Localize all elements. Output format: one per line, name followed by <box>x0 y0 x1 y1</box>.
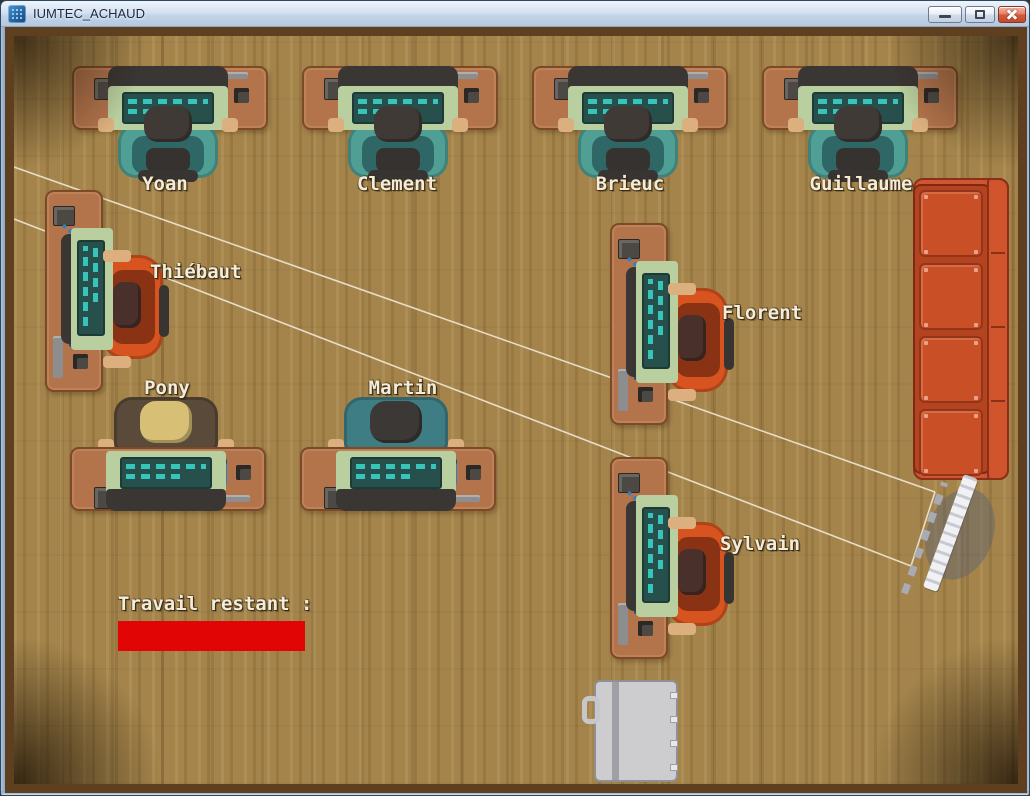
box-icon <box>638 387 653 402</box>
box-icon <box>466 465 481 480</box>
worker-arm <box>668 283 696 295</box>
couch-cushion <box>919 409 983 476</box>
screen-code-lines <box>358 99 438 104</box>
screen-code-lines <box>126 464 206 469</box>
screen-code-lines <box>648 513 653 593</box>
chair-base <box>724 318 734 370</box>
worker-head <box>374 106 422 142</box>
tray-icon <box>618 603 628 645</box>
worker-head <box>834 106 882 142</box>
worker-torso <box>836 148 880 172</box>
workstation-guillaume[interactable] <box>762 66 958 184</box>
maximize-icon <box>975 10 985 19</box>
worker-name-florent: Florent <box>722 302 802 324</box>
game-viewport[interactable]: Travail restant : YoanClementBrieucGuill… <box>5 27 1027 793</box>
screen-code-lines <box>658 279 663 335</box>
maximize-button[interactable] <box>965 6 995 23</box>
workstation-clement[interactable] <box>302 66 498 184</box>
workstation-martin[interactable] <box>300 395 496 513</box>
work-remaining-fill <box>118 621 305 651</box>
worker-head <box>113 282 141 328</box>
workstation-brieuc[interactable] <box>532 66 728 184</box>
monitor-screen <box>350 457 442 489</box>
box-icon <box>694 88 709 103</box>
worker-head <box>678 549 706 595</box>
chair-base <box>724 552 734 604</box>
couch-cushion <box>919 336 983 403</box>
worker-arm <box>668 517 696 529</box>
window-frame: IUMTEC_ACHAUD <box>0 0 1030 796</box>
couch-cushion <box>919 263 983 330</box>
chair-base <box>159 285 169 337</box>
worker-arm <box>103 250 131 262</box>
worker-arm <box>558 118 574 132</box>
couch <box>913 178 1009 480</box>
couch-backrest <box>987 178 1009 480</box>
office-room: Travail restant : YoanClementBrieucGuill… <box>5 27 1027 793</box>
app-window: IUMTEC_ACHAUD <box>0 0 1030 796</box>
screen-code-lines <box>818 99 898 104</box>
worker-name-thiebaut: Thiébaut <box>150 261 242 283</box>
worker-name-martin: Martin <box>369 377 438 399</box>
couch-cushion <box>919 190 983 257</box>
screen-code-lines <box>588 99 668 104</box>
worker-arm <box>912 118 928 132</box>
worker-torso <box>146 148 190 172</box>
screen-code-lines <box>356 474 414 479</box>
worker-name-pony: Pony <box>144 377 190 399</box>
worker-head <box>678 315 706 361</box>
worker-arm <box>788 118 804 132</box>
worker-head <box>140 401 192 443</box>
worker-head <box>144 106 192 142</box>
workstation-pony[interactable] <box>70 395 266 513</box>
door <box>594 680 678 782</box>
projector-screen <box>893 471 1005 603</box>
worker-arm <box>222 118 238 132</box>
worker-torso <box>606 148 650 172</box>
work-remaining-progressbar <box>118 621 305 651</box>
worker-name-guillaume: Guillaume <box>810 173 913 195</box>
worker-name-sylvain: Sylvain <box>720 533 800 555</box>
worker-name-clement: Clement <box>357 173 437 195</box>
box-icon <box>73 354 88 369</box>
tray-icon <box>53 336 63 378</box>
worker-arm <box>682 118 698 132</box>
box-icon <box>236 465 251 480</box>
monitor-screen <box>120 457 212 489</box>
window-title: IUMTEC_ACHAUD <box>33 5 145 23</box>
door-handle-icon <box>582 696 600 724</box>
box-icon <box>924 88 939 103</box>
box-icon <box>638 621 653 636</box>
tray-icon <box>618 369 628 411</box>
monitor-back <box>336 489 456 511</box>
work-remaining-label: Travail restant : <box>118 593 312 615</box>
minimize-button[interactable] <box>928 6 962 23</box>
screen-code-lines <box>658 513 663 569</box>
workstation-sylvain[interactable] <box>610 457 736 663</box>
monitor-screen <box>642 507 670 603</box>
worker-arm <box>328 118 344 132</box>
box-icon <box>464 88 479 103</box>
screen-code-lines <box>356 464 436 469</box>
monitor-screen <box>642 273 670 369</box>
screen-code-lines <box>83 246 88 326</box>
workstation-florent[interactable] <box>610 223 736 429</box>
box-icon <box>234 88 249 103</box>
worker-arm <box>103 356 131 368</box>
monitor-screen <box>77 240 105 336</box>
screen-code-lines <box>648 279 653 359</box>
worker-arm <box>668 623 696 635</box>
worker-name-brieuc: Brieuc <box>596 173 665 195</box>
worker-head <box>604 106 652 142</box>
worker-name-yoan: Yoan <box>142 173 188 195</box>
screen-code-lines <box>126 474 184 479</box>
worker-head <box>370 401 422 443</box>
wood-floor: Travail restant : YoanClementBrieucGuill… <box>14 36 1018 784</box>
screen-code-lines <box>128 99 208 104</box>
workstation-thiebaut[interactable] <box>45 190 171 396</box>
app-icon <box>8 5 26 23</box>
screen-code-lines <box>93 246 98 302</box>
monitor-back <box>106 489 226 511</box>
titlebar[interactable]: IUMTEC_ACHAUD <box>1 1 1029 27</box>
worker-arm <box>452 118 468 132</box>
worker-torso <box>376 148 420 172</box>
worker-arm <box>668 389 696 401</box>
close-button[interactable] <box>998 6 1026 23</box>
minimize-icon <box>939 15 951 18</box>
worker-arm <box>98 118 114 132</box>
workstation-yoan[interactable] <box>72 66 268 184</box>
